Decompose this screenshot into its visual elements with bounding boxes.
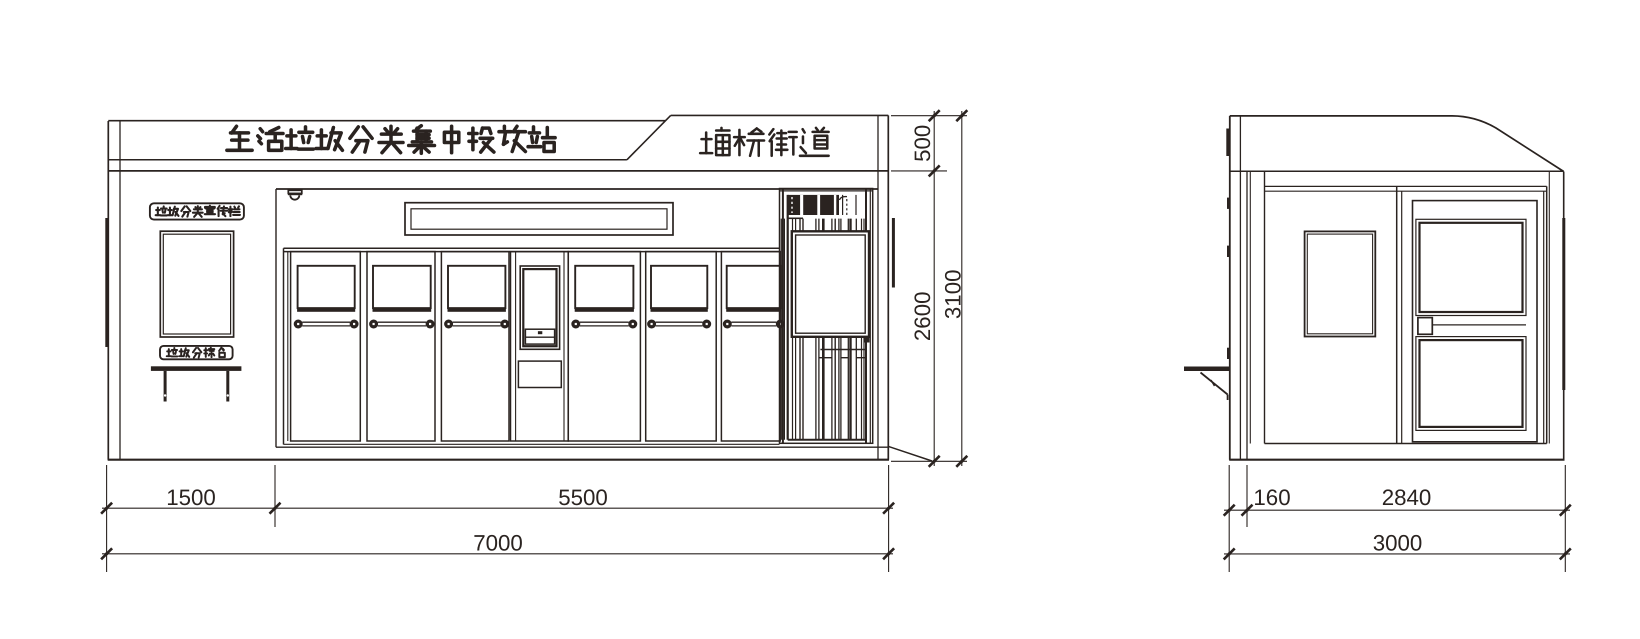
svg-text:160: 160 [1253, 485, 1290, 510]
svg-text:2840: 2840 [1382, 485, 1432, 510]
svg-text:2600: 2600 [910, 291, 935, 341]
svg-text:3100: 3100 [940, 269, 965, 319]
svg-text:7000: 7000 [473, 530, 523, 555]
svg-text:500: 500 [910, 125, 935, 162]
svg-text:3000: 3000 [1373, 530, 1423, 555]
svg-text:1500: 1500 [166, 485, 216, 510]
svg-text:5500: 5500 [558, 485, 608, 510]
